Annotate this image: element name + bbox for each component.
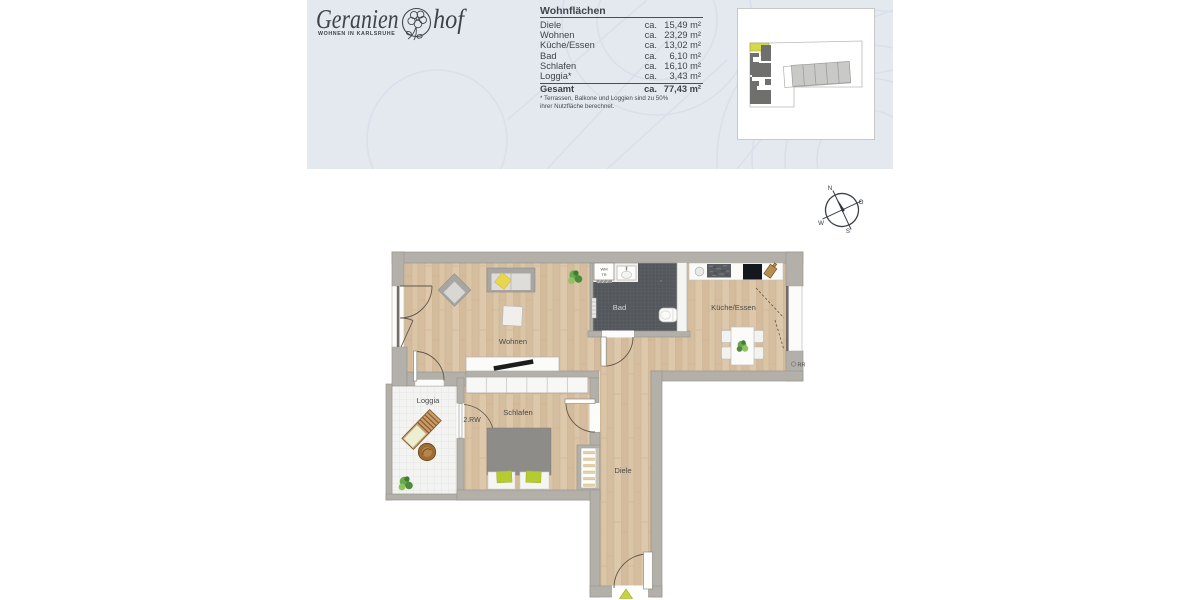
svg-text:O: O (859, 199, 864, 206)
svg-text:RR: RR (798, 363, 806, 369)
svg-text:Wohnen: Wohnen (499, 337, 527, 346)
svg-text:N: N (828, 185, 832, 192)
svg-text:2.RW: 2.RW (463, 417, 481, 424)
svg-text:Diele: Diele (614, 466, 631, 475)
svg-text:W: W (818, 220, 824, 227)
svg-text:TR: TR (601, 272, 606, 277)
svg-text:S: S (846, 228, 850, 235)
svg-text:WM: WM (600, 267, 607, 272)
svg-text:Bad: Bad (613, 303, 627, 312)
svg-text:Loggia: Loggia (417, 396, 441, 405)
svg-text:Küche/Essen: Küche/Essen (711, 303, 756, 312)
svg-text:Schlafen: Schlafen (503, 408, 533, 417)
